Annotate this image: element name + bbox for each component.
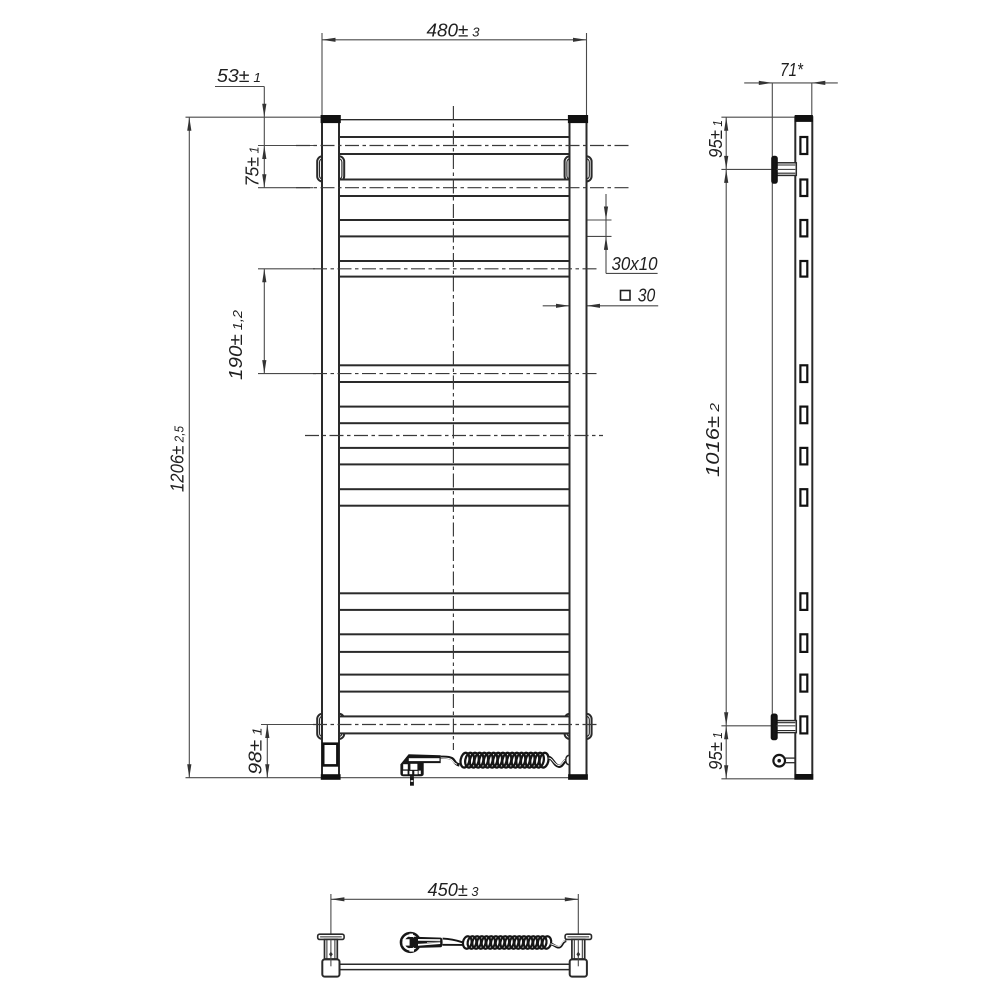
svg-text:30: 30 [638, 285, 656, 306]
svg-text:71*: 71* [780, 59, 804, 80]
svg-text:30x10: 30x10 [612, 253, 659, 274]
